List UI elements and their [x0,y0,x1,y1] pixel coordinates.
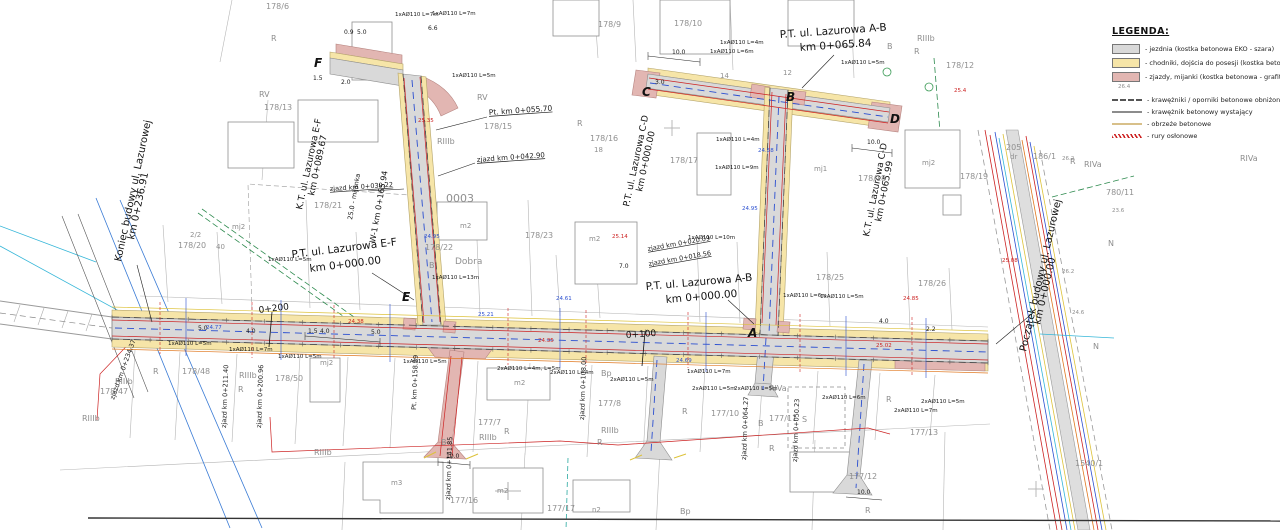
dim-label: 10.0 [857,489,871,496]
spot-elevation: 25.4 [954,88,967,94]
spot-elevation: 24.85 [903,296,919,302]
soil-label: R [769,444,775,453]
parcel-label: 178/21 [314,201,342,210]
building-label: m2 [589,235,600,243]
soil-label: R [238,385,244,394]
pipe-label: 1xAØ110 L=5m [403,358,447,365]
parcel-label: 177/13 [910,428,938,437]
soil-label: R [153,367,159,376]
dim-label: 2.2 [926,326,936,333]
building-label: mj1 [814,165,827,173]
site-plan-canvas: P.T. ul. Lazurowa A-Bkm 0+065.84P.T. ul.… [0,0,1280,530]
pipe-label: 2xAØ110 L=5m [610,376,654,383]
soil-label: RIIIb [314,448,332,457]
legend-swatch-hatch [1112,134,1142,138]
building [943,195,961,215]
building-label: mj2 [922,159,935,167]
dim-label: 4.0 [879,318,889,325]
spot-elevation: 25.21 [478,312,494,318]
pipe-label: 2xAØ110 L=5m [734,385,778,392]
building-label: n2 [592,506,601,514]
building-label: mj2 [232,223,245,231]
legend-item-label: - krawężniki / oporniki betonowe obniżon… [1147,96,1280,104]
legend-item-label: - krawężnik betonowy wystający [1147,108,1253,116]
soil-label: R [271,34,277,43]
tree-symbol [883,68,891,76]
legend-item-label: - rury osłonowe [1147,132,1197,140]
bottom-frame-line [88,518,1280,521]
parcel-label: 177/17 [547,504,575,513]
existing-road-center [0,313,112,328]
soil-label: RV [259,90,270,99]
dim-label: 10.0 [867,139,881,146]
pipe-label: 1xAØ110 L=5m [168,340,212,347]
node-letter: C [642,85,651,99]
pipe-label: 1xAØ110 L=5m [820,293,864,300]
pipe-label: 2xAØ110 L=5m [921,398,965,405]
dim-label: 10.0 [446,453,460,460]
legend-swatch-solid [1112,111,1142,113]
parcel-label: 0003 [446,192,474,205]
building-label: mj2 [320,359,333,367]
spot-elevation: 26.2 [1062,269,1074,275]
legend-swatch-area [1112,44,1140,54]
spot-elevation: 24.58 [758,148,774,154]
spot-elevation: 25.14 [612,234,628,240]
legend-item: - obrzeże betonowe [1112,120,1280,128]
soil-label: Bp [680,507,691,516]
legend-title: LEGENDA: [1112,26,1280,37]
spot-elevation: 25.08 [1002,258,1018,264]
dim-label: 0.9 [344,29,354,36]
building [437,202,487,240]
node-letter: D [890,112,900,126]
soil-label: R [865,506,871,515]
parcel-label: 780/11 [1106,188,1134,197]
zjazd-label: zjazd km 0+018.56 [648,249,712,268]
building [553,0,599,36]
pipe-label: 1xAØ110 L=7m [432,10,476,17]
dim-label: 1.5 [313,75,323,82]
building-label: m2 [460,222,471,230]
spot-elevation: 24.6 [1072,310,1085,316]
tree-symbol [925,83,933,91]
spot-elevation: 23.6 [1112,208,1125,214]
pipe-label: 1xAØ110 L=6m [710,48,754,55]
street-label: km 0+000.00 [665,288,738,306]
parcel-label: 205 [1006,143,1021,152]
legend-item: - krawężnik betonowy wystający [1112,108,1280,116]
parcel-label: 177/8 [598,399,621,408]
legend-item: - chodniki, dojścia do posesji (kostka b… [1112,58,1280,68]
spot-elevation: 26.2 [1062,156,1074,162]
pipe-label: 1xAØ110 L=5m [278,353,322,360]
soil-label: RIVa [1240,154,1258,163]
corridor-cyan-line [999,138,1071,530]
dim-label: 4.0 [246,328,256,335]
dim-label: 5.0 [357,29,367,36]
legend-swatch-solid [1112,123,1142,125]
soil-label: R [682,407,688,416]
parcel-label: 178/6 [266,2,289,11]
parcel-label: 178/10 [674,19,702,28]
parcel-label: Dobra [455,257,482,267]
parcel-label: 178/22 [425,243,453,252]
soil-label: N [1108,239,1114,248]
dim-label: 5.0 [371,329,381,336]
zjazd-label: Pt. km 0+055.70 [489,104,553,117]
soil-label: RIIIb [437,137,455,146]
pipe-label: 1xAØ110 L=5m [452,72,496,79]
zjazd-label: zjazd km 0+042.90 [477,151,546,164]
soil-label: R [914,47,920,56]
soil-label: N [1093,342,1099,351]
parcel-label: 178/15 [484,122,512,131]
spot-elevation: 24.95 [742,206,758,212]
zjazd-label: zjazd km 0+200.96 [255,365,265,429]
site-plan-page: P.T. ul. Lazurowa A-Bkm 0+065.84P.T. ul.… [0,0,1280,530]
parcel-label: dr [1010,153,1017,161]
utility-corridor [978,130,1114,530]
chainage-label: 0+100 [626,329,657,341]
parcel-label: 178/23 [525,231,553,240]
soil-label: RIIIb [239,371,257,380]
building [575,222,637,284]
pipe-label: 1xAØ110 L=7m [687,368,731,375]
pipe-label: 2xAØ110 L=6m [822,394,866,401]
soil-label: RIVa [1084,160,1102,169]
soil-label: RV [477,93,488,102]
street-label: Koniec budowy ul. Lazurowej [113,119,154,263]
parcel-label: 178/16 [590,134,618,143]
legend-item: - krawężniki / oporniki betonowe obniżon… [1112,96,1280,104]
pipe-label: 1xAØ110 L=9m [715,164,759,171]
parcel-label: 177/7 [478,418,501,427]
corridor-red-lines [985,130,1098,530]
soil-label: RIIIb [917,34,935,43]
node-letter: A [747,326,757,340]
parcel-label: 178/26 [918,279,946,288]
parcel-label: 178/9 [598,20,621,29]
parcel-label: 178/12 [946,61,974,70]
parcel-label: 40 [216,243,225,251]
soil-label: R [597,438,603,447]
pipe-label: 1xAØ110 L=5m [268,256,312,263]
dim-label: 10.0 [672,49,686,56]
black-diagonal-lines [62,214,148,398]
parcel-label: 178/17 [670,156,698,165]
pipe-label: 1xAØ110 L=4m [720,39,764,46]
legend-item-label: - jezdnia (kostka betonowa EKO - szara) [1145,45,1274,53]
legend-item: - zjazdy, mijanki (kostka betonowa - gra… [1112,72,1280,82]
zjazd-label: zjazd km 0+211.40 [220,365,230,429]
legend-item-label: - chodniki, dojścia do posesji (kostka b… [1145,59,1280,67]
dim-label: 2.0 [341,79,351,86]
legend: LEGENDA: - jezdnia (kostka betonowa EKO … [1112,26,1280,144]
parcel-label: 177/16 [450,496,478,505]
zjazd-label: zjazd km 0+064.27 [740,397,750,461]
chainage-label: 0+200 [258,302,290,316]
node-letter: E [402,290,411,304]
soil-label: R [577,119,583,128]
spot-elevation: 24.77 [206,325,222,331]
zjazd-label: zjazd km 0+141.85 [444,437,454,501]
parcel-label: 177/10 [711,409,739,418]
building-label: m3 [391,479,402,487]
legend-item-label: - zjazdy, mijanki (kostka betonowa - gra… [1145,73,1280,81]
pipe-label: 1xAØ110 L=13m [432,274,479,281]
parcel-label: 178/13 [264,103,292,112]
dim-label: 4.0 [320,328,330,335]
spot-elevation: 25.35 [418,118,434,124]
pipe-label: 2xAØ110 L=5m [692,385,736,392]
soil-label: RIIIb [82,414,100,423]
street-label: 25.0 - mijanka [346,173,362,220]
spot-elevation: 24.69 [676,358,692,364]
building-label: m2 [514,379,525,387]
soil-label: R [504,427,510,436]
parcel-label: 178/19 [960,172,988,181]
building-stepped [363,462,443,513]
soil-label: B [887,42,893,51]
dim-label: 6.6 [428,25,438,32]
parcel-label: 12 [783,69,792,77]
dim-label: 7.0 [619,263,629,270]
pipe-label: 1xAØ110 L=4m [716,136,760,143]
dim-label: 1.5 [308,328,318,335]
parcel-label: 18 [594,146,603,154]
legend-item: - rury osłonowe [1112,132,1280,140]
parcel-label: 1540/1 [1075,459,1103,468]
legend-item: - jezdnia (kostka betonowa EKO - szara) [1112,44,1280,54]
spot-elevation: 24.38 [348,319,364,325]
dim-label: 3.0 [655,79,665,86]
spot-elevation: 24.95 [424,234,440,240]
legend-swatch-dashed [1112,99,1142,101]
pipe-label: 2xAØ110 L=7m [894,407,938,414]
existing-road-edges [0,301,112,339]
parcel-label: 177/12 [849,472,877,481]
spot-elevation: 25.02 [876,343,892,349]
parcel-label: 178/18 [858,174,886,183]
legend-swatch-area [1112,72,1140,82]
pipe-label: 1xAØ110 L=5m [841,59,885,66]
zjazd-label: Pt. km 0+158.29 [410,355,420,410]
parcel-label: 186/1 [1033,152,1056,161]
parcel-label: 178/48 [182,367,210,376]
parcel-label: 178/25 [816,273,844,282]
building [573,480,630,512]
parcel-label: 14 [720,72,729,80]
parcel-label: 178/20 [178,241,206,250]
node-letter: B [786,90,795,104]
node-letter: F [314,56,323,70]
soil-label: B [758,419,764,428]
corridor-gray-band [1006,130,1090,530]
soil-label: RIIIb [479,433,497,442]
parcel-label: 178/50 [275,374,303,383]
parcel-label: 2/2 [190,231,201,239]
soil-label: RIIIb [601,426,619,435]
legend-swatch-area [1112,58,1140,68]
spot-elevation: 24.35 [538,338,554,344]
pipe-label: 1xAØ110 L=7m [229,346,273,353]
building-label: m2 [497,487,508,495]
soil-label: B [429,261,435,270]
soil-label: R [886,395,892,404]
soil-label: S [802,415,807,424]
legend-items: - jezdnia (kostka betonowa EKO - szara)-… [1112,44,1280,140]
legend-item-label: - obrzeże betonowe [1147,120,1211,128]
building [228,122,294,168]
spot-elevation: 24.61 [556,296,572,302]
zjazd-label: zjazd km 0+108.00 [578,357,588,421]
